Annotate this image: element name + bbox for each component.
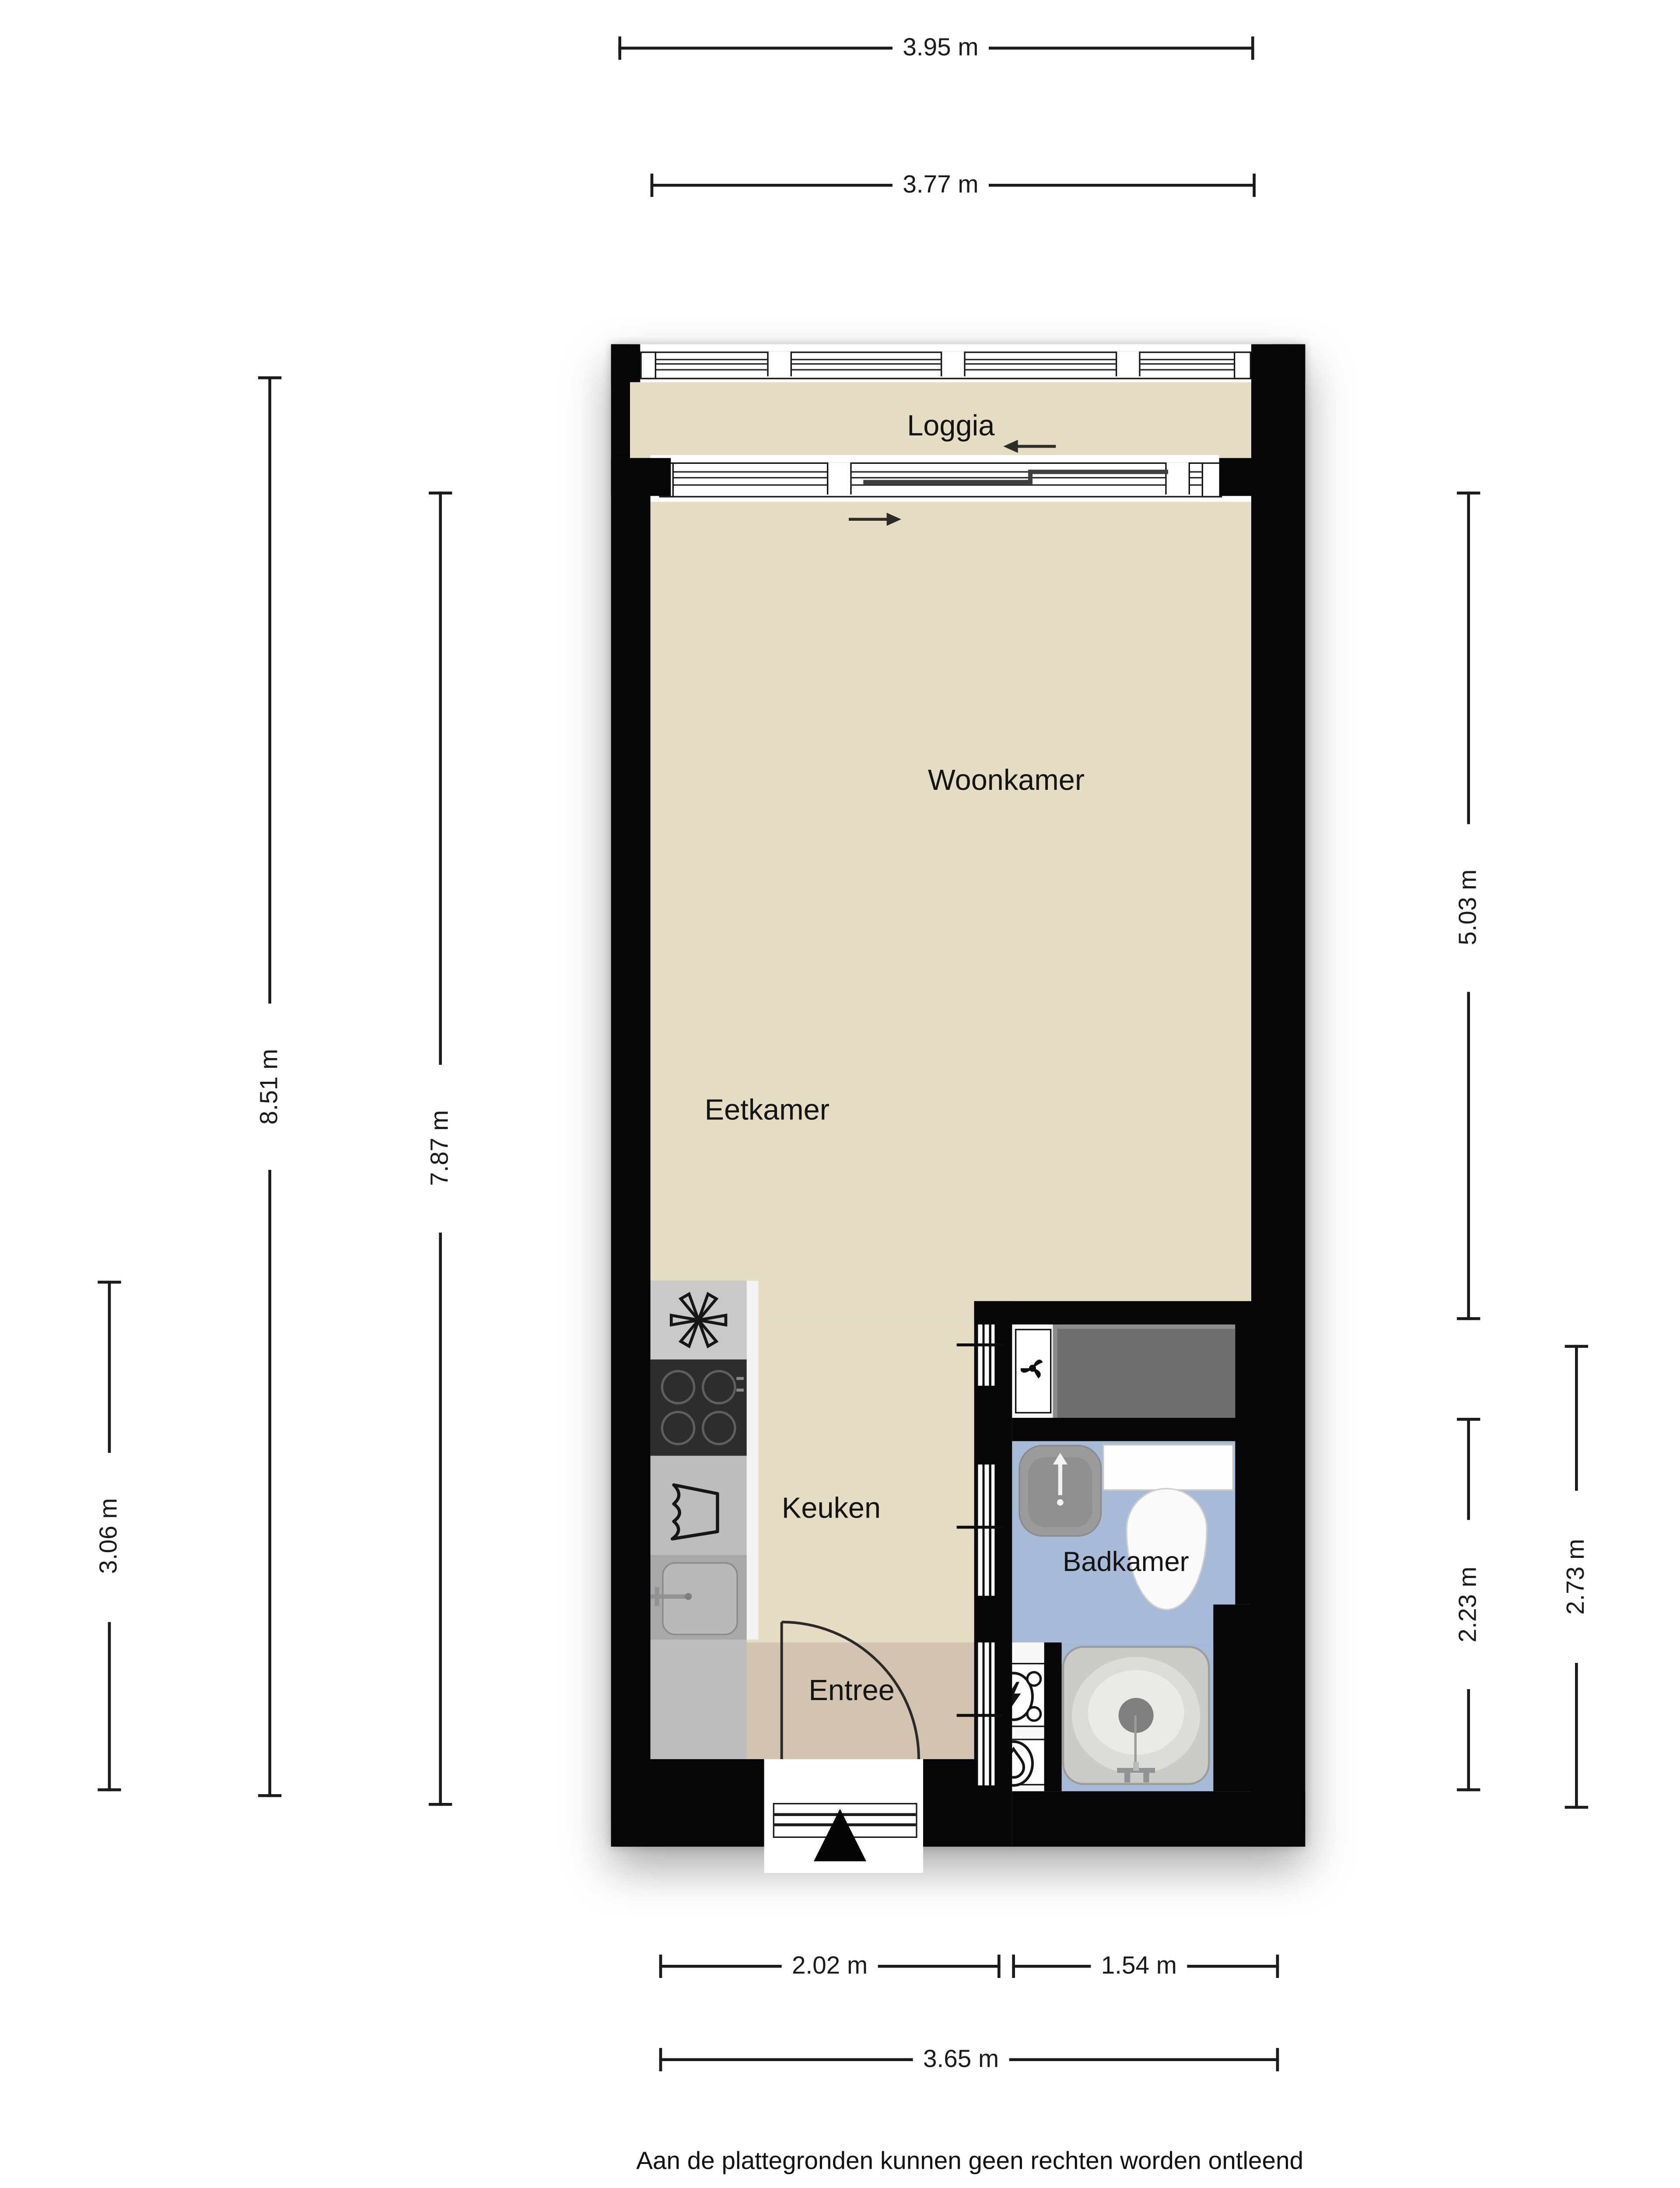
dim-right-lower-inner: 2.23 m: [1454, 1567, 1483, 1642]
wall-bottom-left: [611, 1759, 764, 1847]
wall-right-band-block: [1219, 458, 1251, 496]
extractor-fan-icon: [666, 1288, 731, 1352]
wall-tick: [957, 1714, 1004, 1716]
sliding-leaf-lower: [863, 480, 1032, 484]
dim-left-lower: 3.06 m: [95, 1498, 124, 1574]
dim-line: [659, 2058, 913, 2061]
window-mullion: [767, 351, 792, 376]
bathtub: [1062, 1645, 1211, 1785]
dim-tick: [1276, 2048, 1279, 2071]
kitchen-cabinet-unit: [653, 1479, 729, 1549]
dim-tick: [98, 1788, 121, 1792]
wall-bathblock-top: [974, 1301, 1251, 1324]
dim-tick: [429, 1803, 452, 1806]
electric-meter-box: [1006, 1663, 1046, 1727]
washbasin-icon: [1018, 1444, 1102, 1540]
wall-closet-bottom: [1012, 1418, 1251, 1441]
dim-line: [989, 47, 1254, 49]
dim-line: [989, 184, 1256, 186]
dim-line: [659, 1965, 782, 1967]
dim-tick: [1565, 1345, 1588, 1348]
wall-meter-right: [1044, 1642, 1062, 1791]
dim-bottom-left: 2.02 m: [792, 1952, 868, 1981]
dim-tick: [1565, 1806, 1588, 1809]
window-mullion: [827, 463, 852, 494]
dim-tick: [651, 174, 654, 197]
dim-line: [1467, 1689, 1470, 1791]
window-mullion: [1116, 351, 1141, 376]
dim-tick: [1457, 1317, 1480, 1320]
dim-bottom-total: 3.65 m: [923, 2045, 999, 2074]
window-mullion: [941, 351, 966, 376]
dim-tick: [1253, 174, 1256, 197]
woonkamer-floor: [651, 502, 1251, 1320]
wall-bottom-right: [1012, 1791, 1305, 1847]
window-glazing-line: [671, 484, 1207, 485]
dim-tick: [1457, 1788, 1480, 1792]
mechanical-ventilation-icon: [1016, 1351, 1048, 1389]
wall-bottom-mid: [923, 1759, 1012, 1847]
dim-bottom-right: 1.54 m: [1101, 1952, 1177, 1981]
dim-tick: [659, 2048, 662, 2071]
room-label-badkamer: Badkamer: [1063, 1548, 1189, 1580]
sliding-leaf-upper: [1028, 470, 1168, 473]
dim-top-inner: 3.77 m: [903, 171, 978, 200]
wall-tick: [957, 1526, 1004, 1528]
dim-line: [1187, 1965, 1279, 1967]
dim-line: [108, 1622, 111, 1792]
wall-top-left-corner: [611, 344, 640, 382]
room-label-eetkamer: Eetkamer: [705, 1095, 829, 1129]
kitchen-cabinet-icon: [653, 1479, 729, 1549]
footer-copyright: © Zibber www.zibber.nl: [843, 2187, 1097, 2188]
wall-left: [611, 458, 651, 1847]
bathtub-icon: [1062, 1645, 1211, 1785]
dim-tick: [1251, 36, 1254, 60]
dark-cabinet: [1053, 1325, 1235, 1418]
dim-tick: [1276, 1955, 1279, 1978]
dim-line: [651, 184, 892, 186]
dim-line: [108, 1281, 111, 1453]
cooktop-unit: [651, 1360, 747, 1456]
dim-line: [1467, 992, 1470, 1320]
wall-right: [1251, 344, 1305, 1847]
dim-line: [268, 1170, 271, 1797]
wall-tick: [957, 1343, 1004, 1346]
dim-line: [1575, 1345, 1578, 1490]
counter-edge-strip: [747, 1281, 759, 1640]
dim-left-outer: 8.51 m: [255, 1049, 284, 1125]
window-mullion: [1165, 463, 1190, 494]
window-end-cap: [640, 351, 656, 379]
wall-right-tub-step: [1213, 1605, 1251, 1792]
dim-tick: [1457, 1418, 1480, 1421]
room-label-woonkamer: Woonkamer: [928, 765, 1085, 799]
dim-line: [1467, 491, 1470, 824]
dim-tick: [429, 491, 452, 494]
dim-tick: [1457, 491, 1480, 494]
dim-tick: [258, 376, 281, 379]
dim-tick: [659, 1955, 662, 1978]
dim-tick: [258, 1794, 281, 1797]
dim-line: [439, 491, 441, 1065]
dim-tick: [997, 1955, 1001, 1978]
floorplan-stage: Loggia Woonkamer Eetkamer Keuken Entree …: [0, 0, 1680, 2188]
water-meter-box: [1006, 1739, 1046, 1785]
extractor-unit: [651, 1281, 747, 1360]
room-label-keuken: Keuken: [782, 1493, 881, 1527]
sink-faucet-icon: [651, 1584, 700, 1610]
floorplan-page: Loggia Woonkamer Eetkamer Keuken Entree …: [0, 0, 1680, 2188]
dim-tick: [98, 1281, 121, 1284]
dim-tick: [618, 36, 621, 60]
dim-left-inner: 7.87 m: [426, 1110, 455, 1186]
slide-arrow-right-icon: [846, 508, 904, 531]
dim-line: [878, 1965, 1001, 1967]
window-end-cap: [1234, 351, 1251, 379]
closet-door: [976, 1325, 994, 1386]
washbasin: [1018, 1444, 1102, 1540]
dim-line: [1012, 1965, 1091, 1967]
dim-top-outer: 3.95 m: [903, 34, 978, 63]
window-glazing-line: [671, 477, 1207, 479]
slide-arrow-left-icon: [1001, 435, 1059, 458]
dim-line: [1009, 2058, 1279, 2061]
room-label-loggia: Loggia: [907, 410, 994, 444]
toilet-cistern: [1102, 1444, 1234, 1491]
dim-line: [439, 1233, 441, 1806]
dim-line: [268, 376, 271, 1003]
room-label-entree: Entree: [808, 1675, 894, 1709]
sliding-leaf-jog: [1028, 470, 1032, 484]
wall-right-bath-fill: [1235, 1320, 1251, 1605]
dim-right-upper: 5.03 m: [1454, 870, 1483, 945]
cooktop-icon: [651, 1360, 747, 1456]
bathroom-door: [976, 1465, 994, 1596]
dim-tick: [1012, 1955, 1015, 1978]
dim-line: [1467, 1418, 1470, 1520]
dim-line: [618, 47, 892, 49]
entrance-arrow-icon: [805, 1806, 875, 1864]
dim-line: [1575, 1663, 1578, 1809]
mv-unit: [1015, 1329, 1051, 1413]
wall-left-band-block: [611, 458, 671, 496]
dim-right-lower-outer: 2.73 m: [1562, 1539, 1591, 1615]
footer-disclaimer: Aan de plattegronden kunnen geen rechten…: [636, 2147, 1303, 2177]
